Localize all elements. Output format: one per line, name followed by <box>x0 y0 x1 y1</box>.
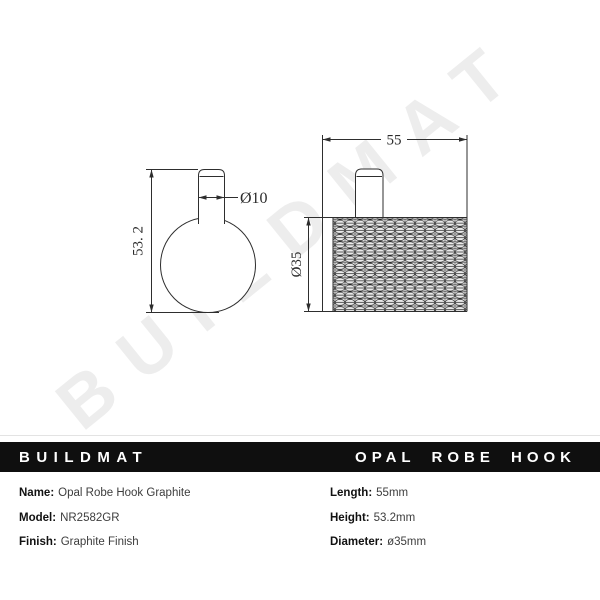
spec-label-diameter: Diameter: <box>330 536 383 548</box>
spec-value-height: 53.2mm <box>374 512 416 524</box>
spec-value-model: NR2582GR <box>60 512 119 524</box>
product-spec-sheet: BUILDMAT <box>0 0 600 600</box>
dim-length-label: 55 <box>387 133 402 149</box>
spec-row-model: Model:NR2582GR <box>19 511 190 525</box>
spec-column-left: Name:Opal Robe Hook Graphite Model:NR258… <box>19 486 190 549</box>
hook-face-circle <box>161 218 256 313</box>
spec-value-diameter: ø35mm <box>387 536 426 548</box>
knurl-texture <box>333 218 467 311</box>
dim-length: 55 <box>323 133 468 149</box>
spec-row-length: Length:55mm <box>330 486 426 500</box>
spec-label-model: Model: <box>19 512 56 524</box>
spec-label-height: Height: <box>330 512 370 524</box>
spec-value-length: 55mm <box>376 487 408 499</box>
front-view: 53. 2 Ø10 <box>131 170 268 313</box>
spec-row-height: Height:53.2mm <box>330 511 426 525</box>
spec-label-finish: Finish: <box>19 536 57 548</box>
drawing-area: BUILDMAT <box>0 0 600 436</box>
spec-row-diameter: Diameter:ø35mm <box>330 535 426 549</box>
product-title: OPAL ROBE HOOK <box>355 449 576 466</box>
side-view: 55 Ø35 <box>289 133 467 312</box>
title-banner: BUILDMAT OPAL ROBE HOOK <box>0 442 600 472</box>
technical-drawing: 53. 2 Ø10 <box>0 0 600 436</box>
spec-row-finish: Finish:Graphite Finish <box>19 535 190 549</box>
dim-body-diameter-label: Ø35 <box>289 252 305 278</box>
spec-column-right: Length:55mm Height:53.2mm Diameter:ø35mm <box>330 486 426 549</box>
spec-label-length: Length: <box>330 487 372 499</box>
brand-title: BUILDMAT <box>19 449 148 466</box>
spec-row-name: Name:Opal Robe Hook Graphite <box>19 486 190 500</box>
dim-pin-diameter-label: Ø10 <box>240 190 268 207</box>
spec-value-finish: Graphite Finish <box>61 536 139 548</box>
dim-body-diameter: Ø35 <box>289 218 323 312</box>
dim-height-label: 53. 2 <box>131 226 147 256</box>
spec-value-name: Opal Robe Hook Graphite <box>58 487 190 499</box>
spec-label-name: Name: <box>19 487 54 499</box>
